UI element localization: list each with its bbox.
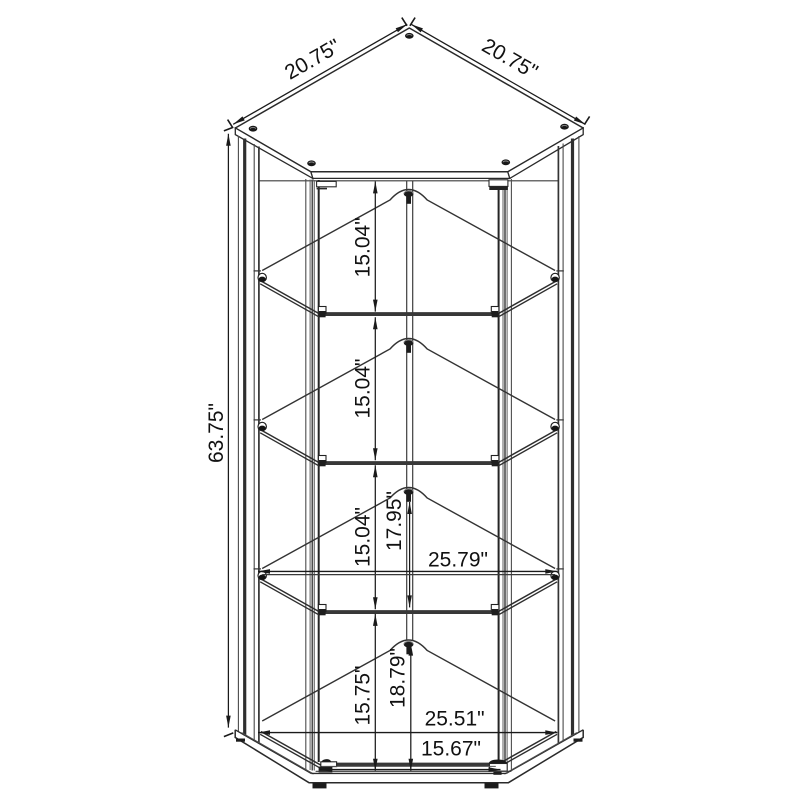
svg-text:15.04": 15.04" [352, 507, 375, 567]
svg-text:15.75": 15.75" [352, 665, 375, 725]
svg-text:15.67": 15.67" [421, 737, 481, 760]
svg-text:63.75": 63.75" [205, 403, 228, 463]
svg-text:15.04": 15.04" [352, 358, 375, 418]
svg-text:25.79": 25.79" [428, 549, 488, 572]
svg-text:18.79": 18.79" [387, 648, 410, 708]
svg-text:15.04": 15.04" [352, 217, 375, 277]
svg-text:17.95": 17.95" [383, 491, 406, 551]
svg-text:25.51": 25.51" [425, 707, 485, 730]
